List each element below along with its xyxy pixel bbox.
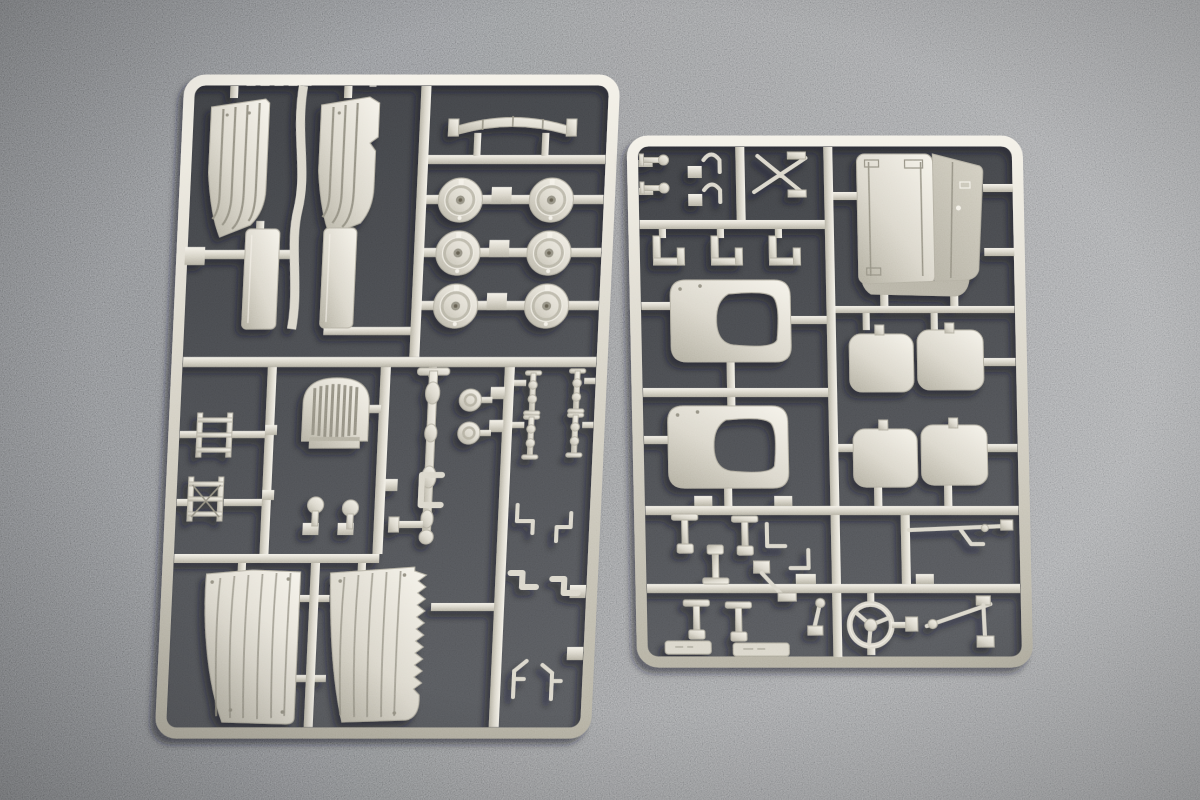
vignette-overlay <box>0 0 1200 800</box>
model-kit-photo <box>0 0 1200 800</box>
photo-canvas <box>0 0 1200 800</box>
